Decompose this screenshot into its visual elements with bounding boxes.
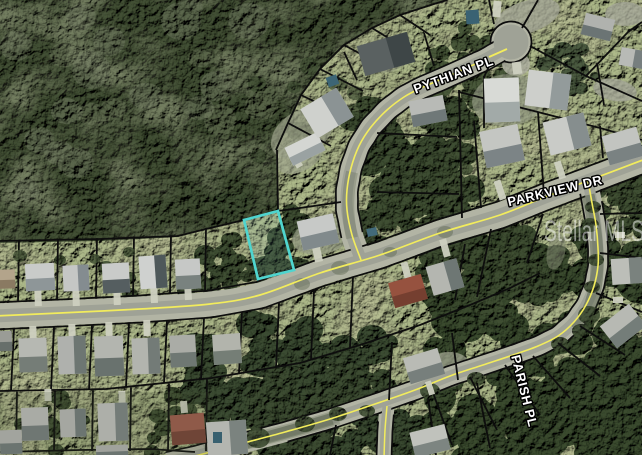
- svg-text:Stellar MLS: Stellar MLS: [544, 215, 642, 248]
